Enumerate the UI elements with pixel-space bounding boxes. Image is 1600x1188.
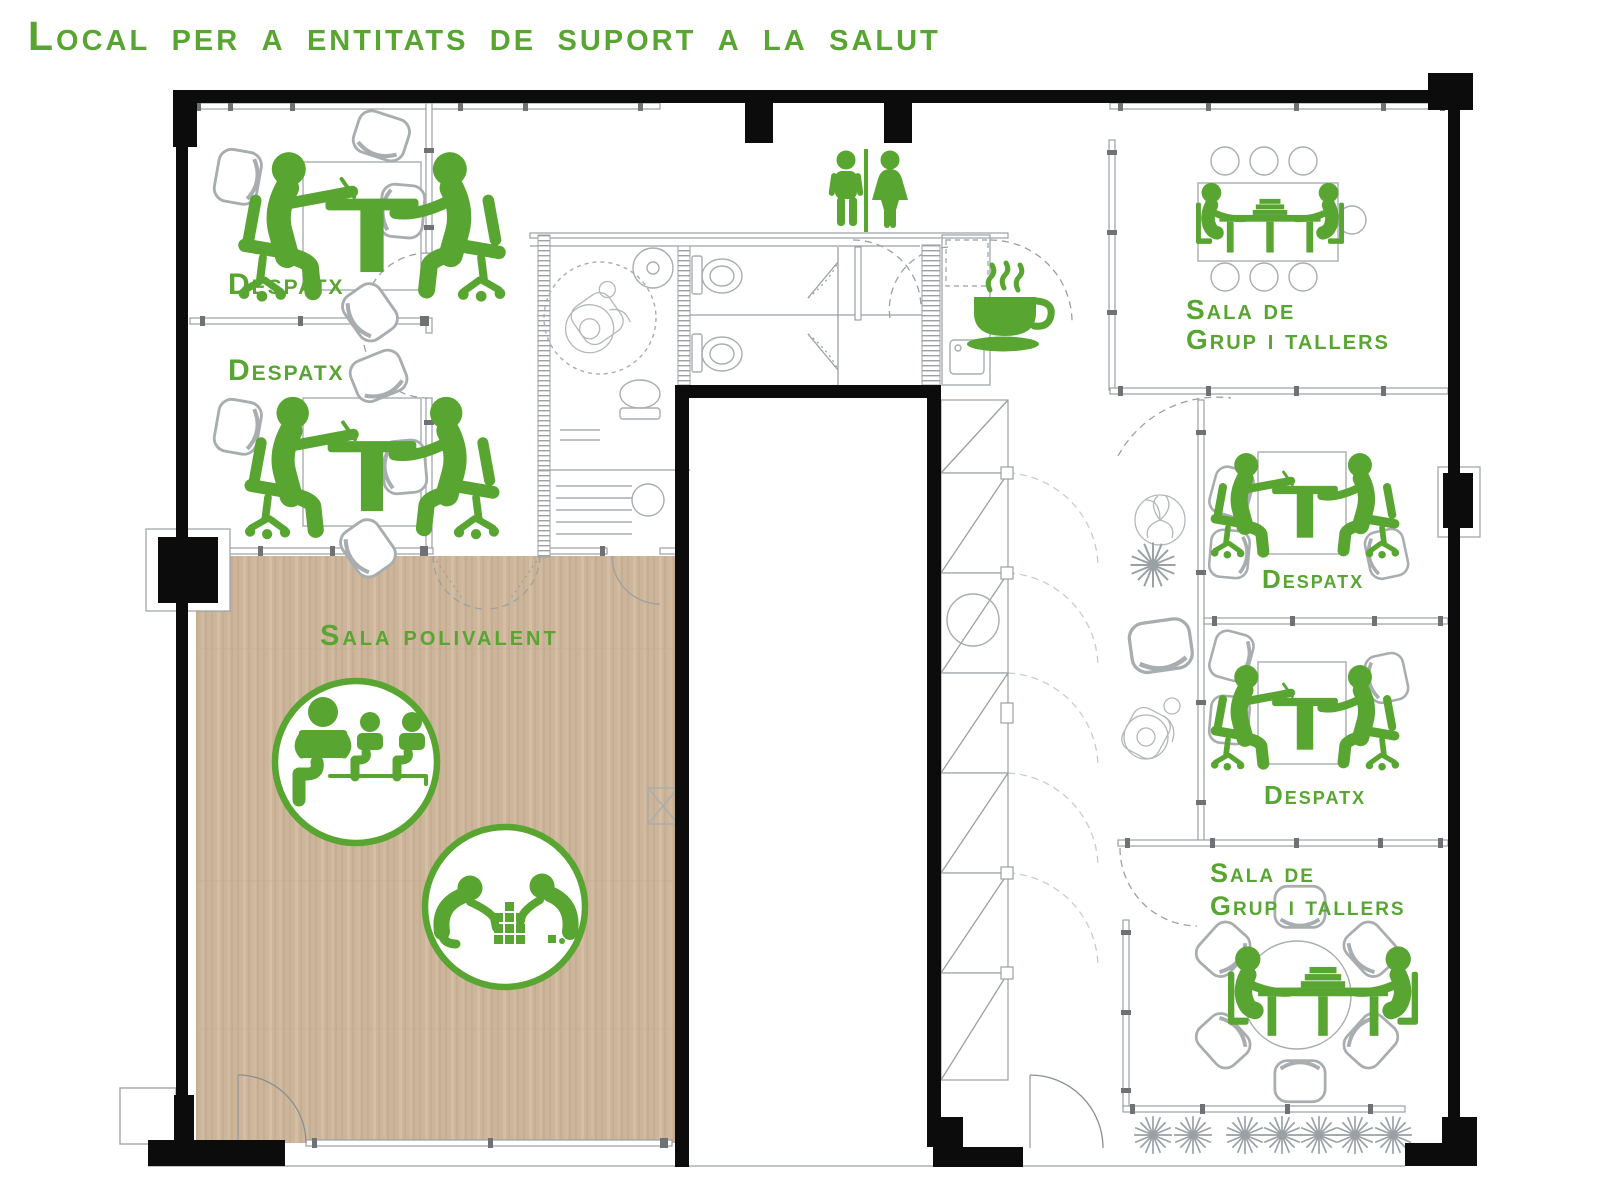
floor-plan-drawing [0,0,1600,1188]
despatx-1-desk-icon [239,152,506,301]
restroom-sign-icon [828,149,908,232]
floor-plan-page: Local per a entitats de suport a la salu… [0,0,1600,1188]
sala-polivalent-floor [196,556,675,1143]
despatx-2-desk-icon [245,397,499,539]
seated-activity-icon [275,681,437,843]
coffee-cup-icon [967,263,1051,352]
children-playing-icon [425,827,585,987]
group-room-top-table-icon [1196,183,1344,253]
despatx-4-desk-icon [1211,665,1399,770]
